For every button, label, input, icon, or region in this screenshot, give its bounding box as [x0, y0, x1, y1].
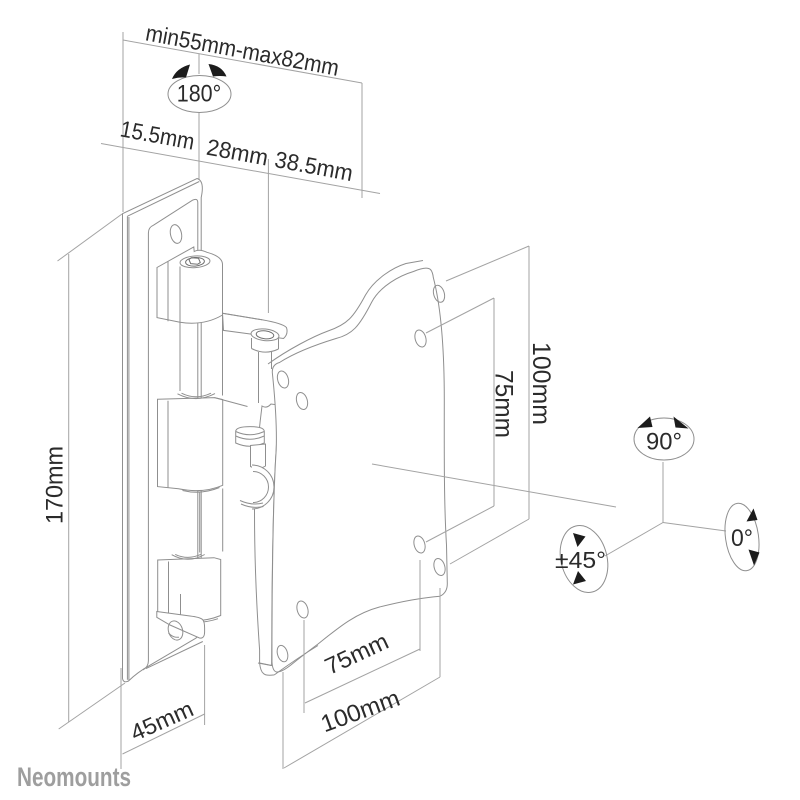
- svg-text:0°: 0°: [731, 525, 753, 552]
- svg-text:170mm: 170mm: [42, 446, 69, 524]
- svg-text:90°: 90°: [646, 429, 682, 456]
- svg-text:±45°: ±45°: [555, 547, 606, 573]
- svg-text:Neomounts: Neomounts: [17, 762, 131, 792]
- svg-text:100mm: 100mm: [527, 342, 555, 425]
- svg-text:75mm: 75mm: [490, 370, 518, 438]
- svg-text:180°: 180°: [177, 81, 222, 108]
